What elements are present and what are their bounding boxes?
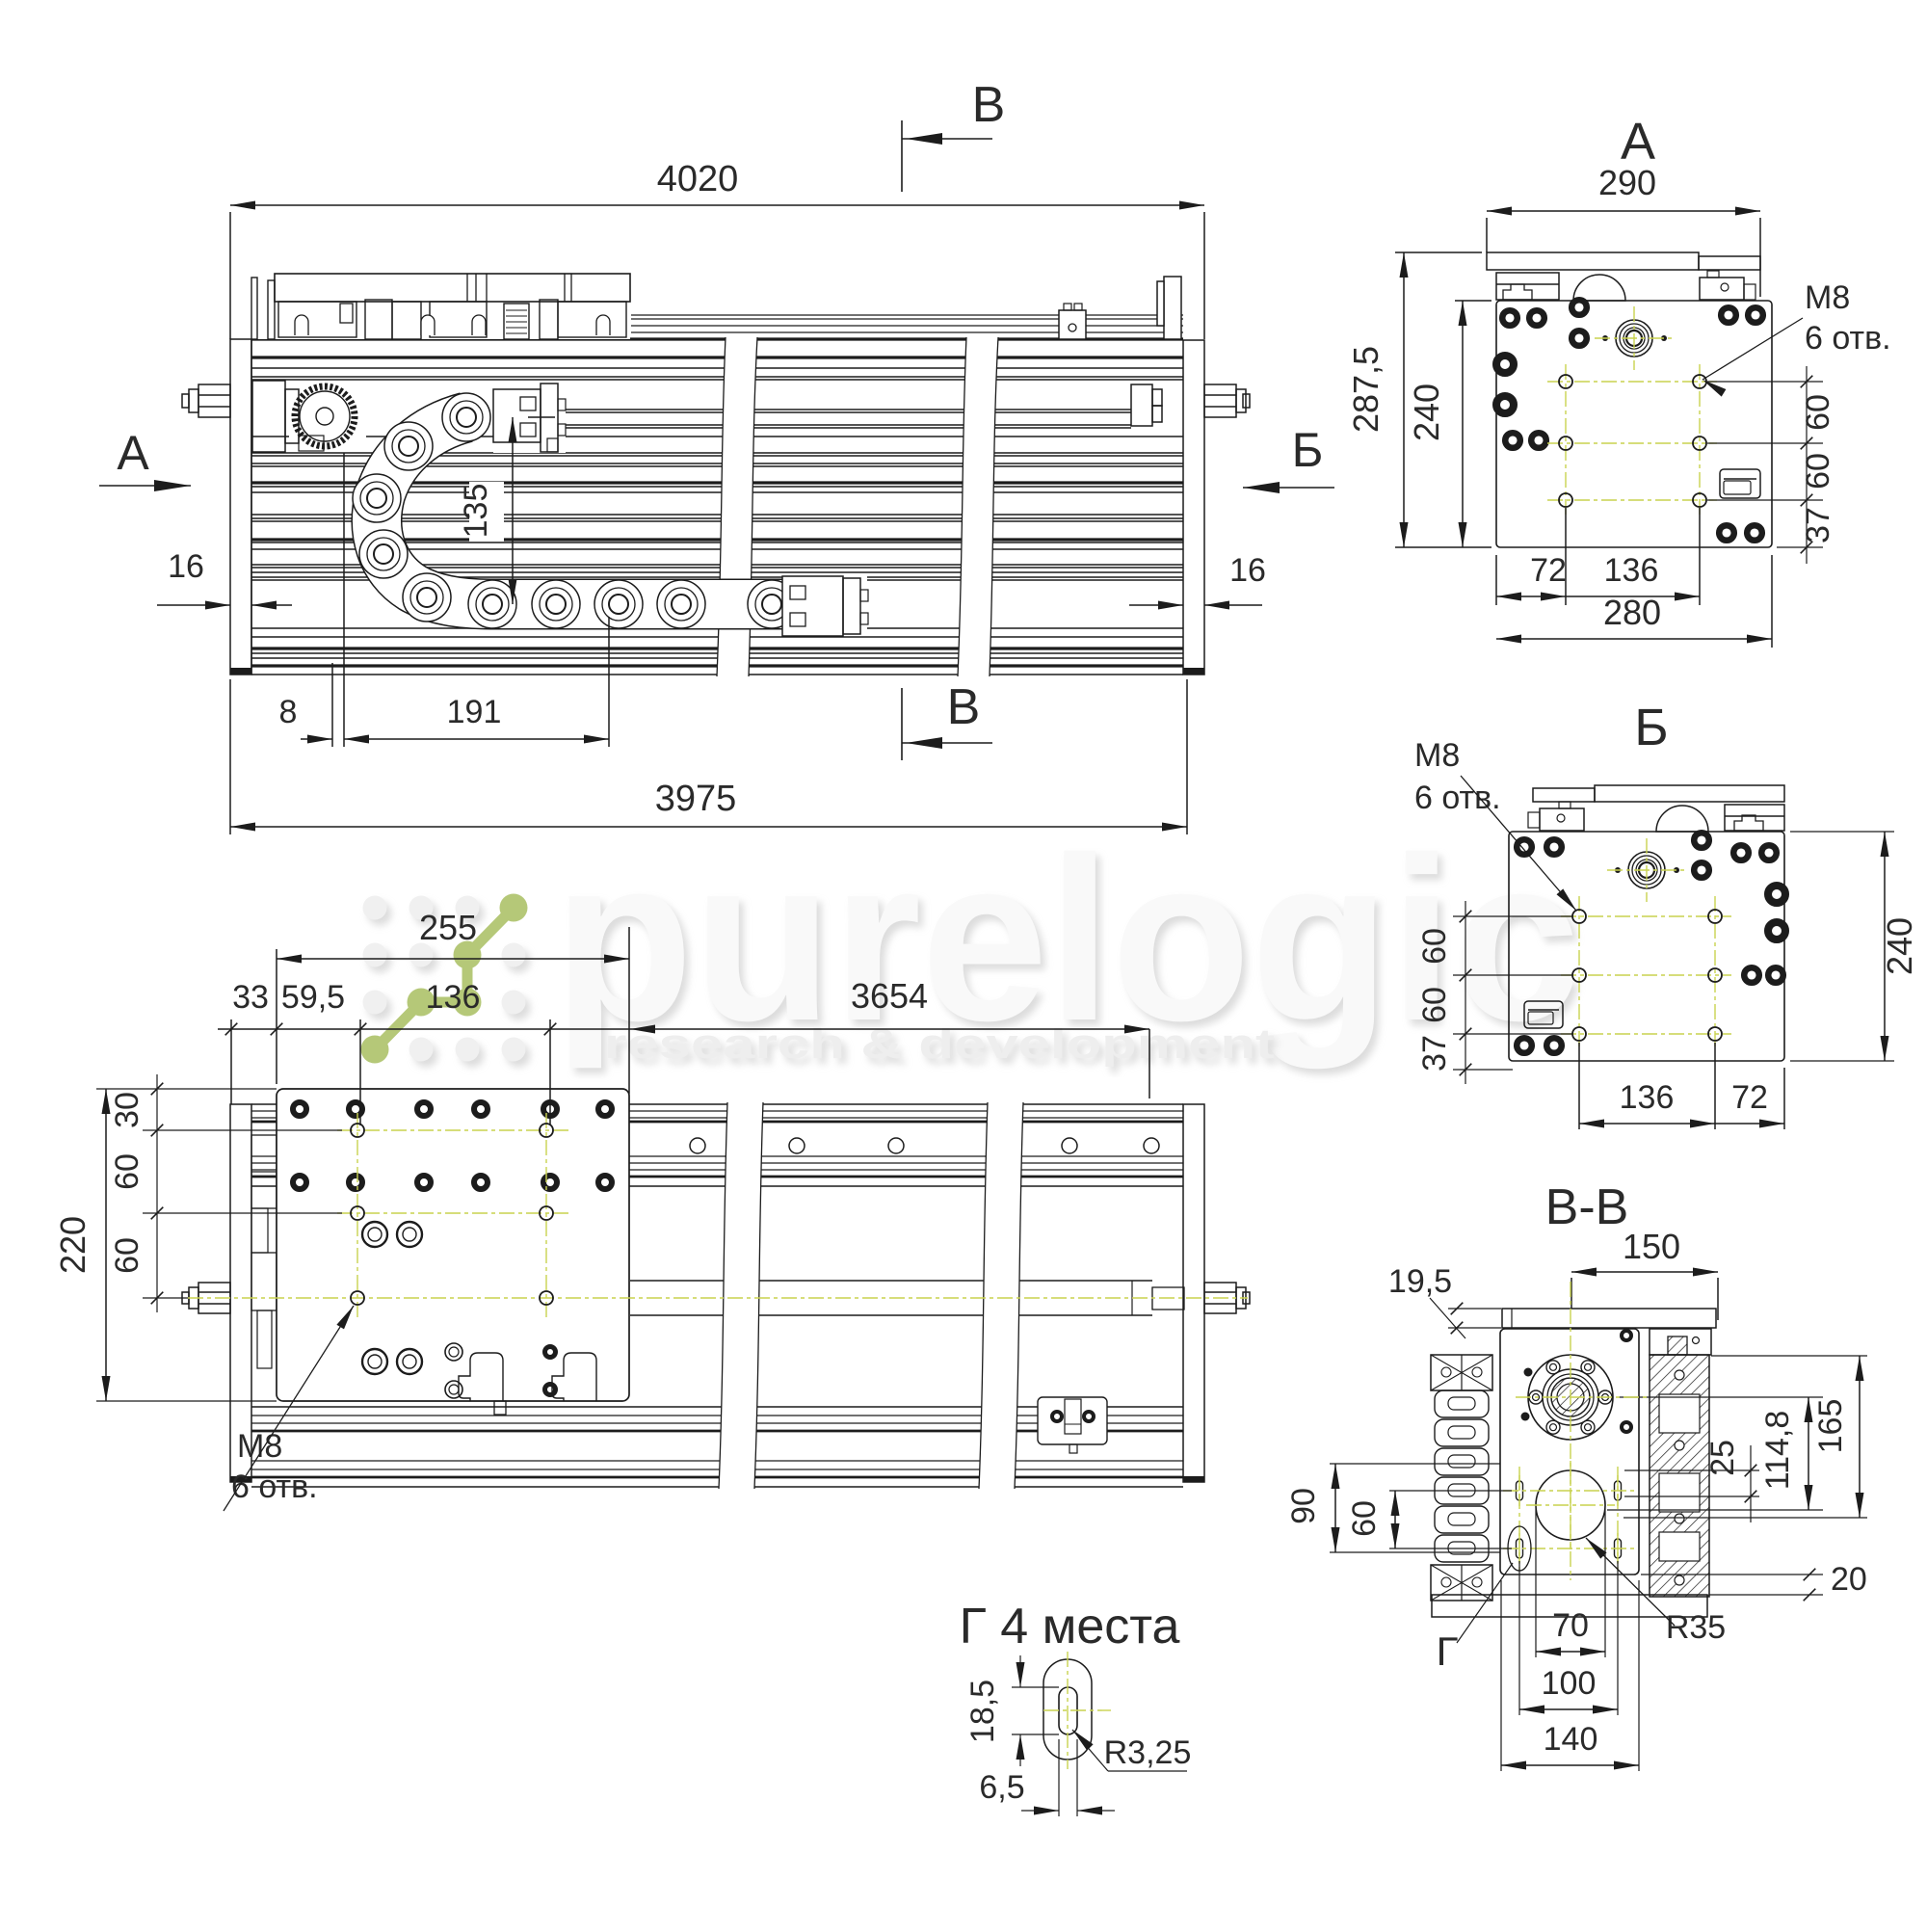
svg-text:135: 135 — [458, 484, 494, 539]
svg-text:60: 60 — [1346, 1500, 1383, 1537]
svg-text:114,8: 114,8 — [1759, 1411, 1796, 1491]
svg-text:72: 72 — [1530, 552, 1567, 589]
svg-text:Б: Б — [1292, 423, 1324, 477]
svg-text:6 отв.: 6 отв. — [1805, 320, 1891, 357]
svg-text:3654: 3654 — [851, 976, 928, 1016]
svg-text:18,5: 18,5 — [964, 1680, 1001, 1743]
svg-text:60: 60 — [1800, 453, 1836, 490]
svg-text:Г 4 места: Г 4 места — [960, 1599, 1180, 1654]
svg-text:6,5: 6,5 — [979, 1769, 1024, 1806]
svg-text:150: 150 — [1623, 1227, 1680, 1266]
svg-text:B: B — [972, 77, 1006, 133]
svg-text:220: 220 — [53, 1216, 92, 1274]
svg-text:290: 290 — [1598, 163, 1656, 202]
svg-text:R3,25: R3,25 — [1104, 1734, 1192, 1771]
svg-text:4020: 4020 — [657, 159, 739, 199]
svg-text:60: 60 — [1416, 928, 1453, 965]
svg-text:191: 191 — [447, 694, 502, 730]
svg-text:А: А — [1621, 113, 1655, 171]
svg-text:8: 8 — [279, 694, 298, 730]
svg-text:20: 20 — [1831, 1561, 1867, 1598]
svg-text:research & development: research & development — [604, 1020, 1275, 1068]
svg-text:B: B — [947, 679, 981, 735]
svg-text:А: А — [117, 426, 149, 480]
svg-text:37: 37 — [1800, 507, 1836, 543]
svg-text:60: 60 — [1800, 394, 1836, 431]
svg-text:60: 60 — [109, 1237, 145, 1274]
svg-text:16: 16 — [168, 548, 204, 585]
svg-text:60: 60 — [1416, 987, 1453, 1023]
svg-text:16: 16 — [1229, 552, 1266, 589]
svg-text:25: 25 — [1704, 1440, 1741, 1476]
svg-text:30: 30 — [109, 1092, 145, 1128]
svg-text:100: 100 — [1542, 1665, 1597, 1702]
svg-text:240: 240 — [1880, 917, 1919, 975]
svg-text:136: 136 — [1620, 1079, 1675, 1116]
svg-text:M8: M8 — [1414, 737, 1460, 774]
svg-text:165: 165 — [1812, 1399, 1849, 1454]
svg-text:33: 33 — [232, 979, 269, 1016]
svg-text:140: 140 — [1544, 1721, 1598, 1758]
svg-text:3975: 3975 — [655, 779, 737, 819]
svg-text:60: 60 — [109, 1153, 145, 1190]
svg-text:70: 70 — [1552, 1607, 1589, 1644]
svg-text:M8: M8 — [1805, 279, 1850, 316]
svg-text:В-В: В-В — [1545, 1179, 1629, 1235]
svg-text:Б: Б — [1634, 699, 1668, 756]
svg-text:37: 37 — [1416, 1035, 1453, 1072]
svg-text:280: 280 — [1603, 593, 1661, 632]
svg-text:136: 136 — [426, 979, 481, 1016]
svg-text:72: 72 — [1731, 1079, 1768, 1116]
svg-text:90: 90 — [1285, 1488, 1322, 1524]
svg-text:59,5: 59,5 — [281, 979, 345, 1016]
svg-text:255: 255 — [419, 908, 477, 947]
svg-text:136: 136 — [1604, 552, 1659, 589]
svg-text:M8: M8 — [237, 1428, 282, 1465]
svg-text:240: 240 — [1407, 384, 1446, 441]
svg-text:19,5: 19,5 — [1388, 1263, 1452, 1300]
svg-text:6 отв.: 6 отв. — [1414, 780, 1501, 816]
svg-text:Г: Г — [1437, 1628, 1459, 1674]
svg-text:R35: R35 — [1666, 1609, 1726, 1646]
svg-text:287,5: 287,5 — [1346, 346, 1386, 433]
svg-text:6 отв.: 6 отв. — [231, 1469, 318, 1505]
